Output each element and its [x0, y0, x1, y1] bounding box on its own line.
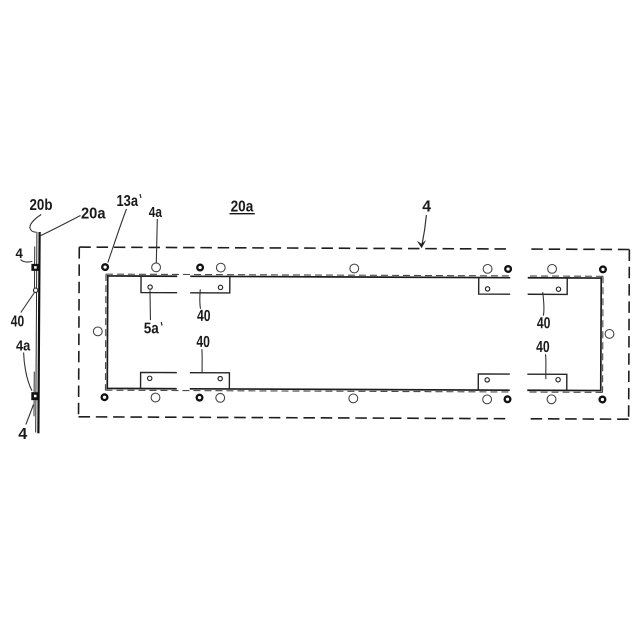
svg-text:40: 40 — [197, 308, 211, 325]
svg-text:4a: 4a — [16, 338, 31, 355]
svg-text:4: 4 — [422, 198, 431, 215]
svg-text:40: 40 — [536, 339, 550, 356]
svg-text:20b: 20b — [30, 197, 53, 214]
svg-text:13a: 13a — [117, 193, 139, 210]
svg-text:4: 4 — [16, 246, 24, 261]
svg-text:20a: 20a — [81, 205, 106, 222]
svg-text:4a: 4a — [149, 204, 163, 221]
svg-text:40: 40 — [11, 314, 24, 331]
svg-text:40: 40 — [537, 315, 551, 332]
svg-text:5a: 5a — [144, 320, 159, 337]
svg-text:40: 40 — [196, 334, 210, 351]
svg-text:4: 4 — [18, 426, 27, 443]
